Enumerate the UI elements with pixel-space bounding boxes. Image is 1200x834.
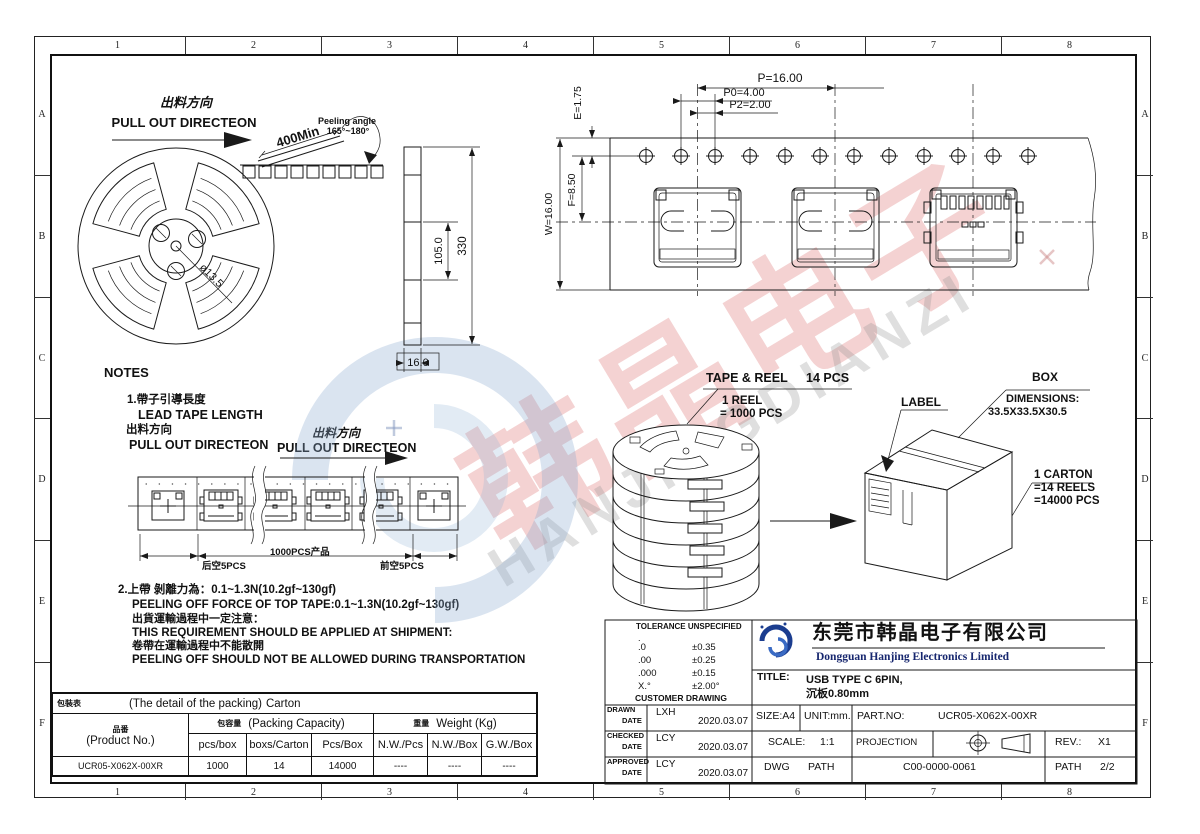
lead-length-dim: 400Min [274,123,321,150]
reel-front-view: ø13.5 [78,148,274,344]
carrier-tape-view [556,84,1096,296]
reel-hub-diameter: ø13.5 [197,262,225,290]
pitch-dim: P=16.00 [757,71,802,85]
reel-height-dim: 330 [457,236,469,255]
lead-tape-strip [128,451,466,561]
reel-width-dim: 16.0 [407,357,428,369]
peeling-angle-value: 165°~180° [327,126,370,136]
f-dim: F=8.50 [566,173,578,206]
drawing-sheet: 韩晶电子 HANJINGDIANZI [0,0,1200,834]
reel-inner-dim: 105.0 [433,237,445,265]
pull-out-label-en: PULL OUT DIRECTEON [112,115,257,130]
title-block-grid [605,620,1137,784]
e-dim: E=1.75 [572,86,584,120]
carton-box [865,390,1093,580]
pull-out-label-cn: 出料方向 [160,95,214,110]
flow-arrow [770,513,857,529]
p2-dim: P2=2.00 [729,99,770,111]
w-dim: W=16.00 [543,193,555,235]
company-logo [761,623,791,656]
drawing-line-art: ø13.5 出料方向 PULL OUT DIRECTEON 400Min Pee… [0,0,1200,834]
stacked-reels [613,389,852,611]
pull-out-arrow [112,132,252,148]
p0-dim: P0=4.00 [723,87,764,99]
peeling-angle-label: Peeling angle [318,116,376,126]
